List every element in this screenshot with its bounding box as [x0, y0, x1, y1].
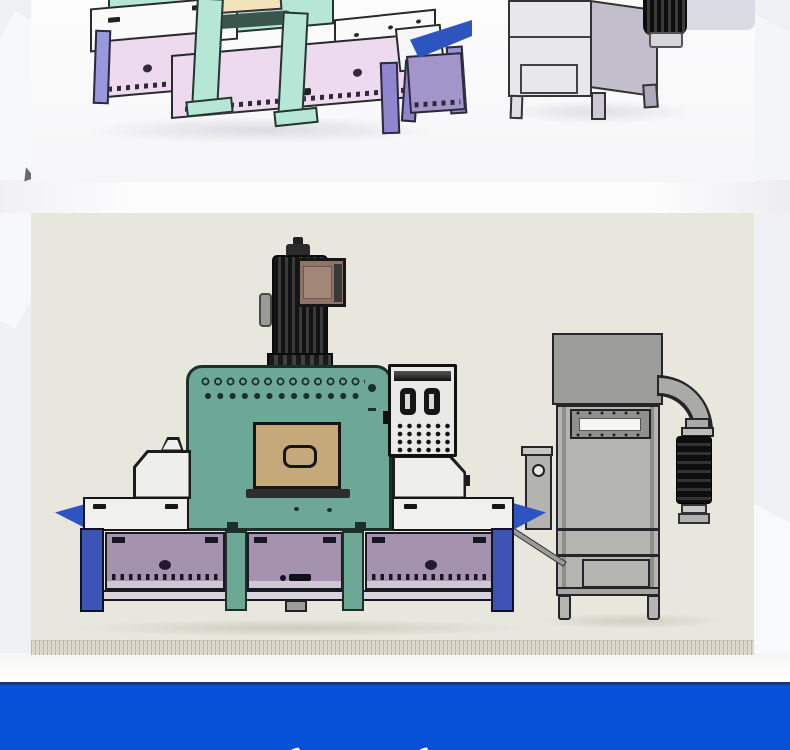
- panel-tab: [108, 17, 120, 23]
- gap-band-between-images: [0, 180, 790, 213]
- perforated-vent-row: [372, 574, 486, 580]
- panel-hole: [353, 68, 362, 77]
- panel-meter: [400, 388, 416, 415]
- bolt-dot: [354, 33, 359, 38]
- cabinet-tab: [254, 537, 267, 543]
- conveyor-end-cabinet: [406, 52, 466, 114]
- hood-right-face: [395, 458, 464, 497]
- bolt-dot: [294, 507, 299, 511]
- panel-side-hinge: [383, 411, 389, 424]
- panel-tick: [368, 408, 376, 411]
- product-image-front: [31, 213, 754, 655]
- render-floor-strip: [31, 640, 754, 655]
- machine-leg-teal-right: [342, 531, 364, 611]
- cabinet-tab: [372, 537, 385, 543]
- aux-port-hole: [532, 464, 545, 477]
- center-foot: [285, 600, 307, 612]
- base-cabinet-left: [105, 532, 225, 590]
- cabinet-tab: [112, 537, 125, 543]
- panel-meter: [424, 388, 440, 415]
- junction-box-side: [334, 264, 342, 302]
- conveyor-hood-right: [392, 455, 466, 499]
- mint-gantry-post-rear: [277, 11, 309, 118]
- perforated-vent-row: [112, 574, 218, 580]
- bolt-dot: [327, 508, 332, 512]
- hood-left-face: [136, 453, 189, 497]
- junction-box-cover: [303, 266, 332, 299]
- mint-post-foot: [185, 97, 233, 118]
- handle-dot: [280, 575, 286, 581]
- machine-leg-teal-left: [225, 531, 247, 611]
- floor-shadow: [71, 619, 531, 637]
- cabinet-tab: [205, 537, 218, 543]
- dust-collector-drawer: [520, 64, 578, 94]
- rivet-row: [414, 99, 461, 107]
- panel-seam: [510, 36, 590, 38]
- control-panel: [388, 364, 457, 457]
- exhaust-duct: [643, 0, 687, 36]
- blast-cabinet-body: [186, 365, 392, 531]
- cabinet-hole: [425, 560, 437, 570]
- dust-collector-leg: [558, 595, 571, 620]
- table-tab: [165, 504, 178, 509]
- bolt-dot: [416, 19, 421, 24]
- conveyor-table-right: [392, 497, 514, 531]
- bolt-row: [576, 433, 645, 437]
- cabinet-tab: [323, 537, 336, 543]
- motor-side-handle: [259, 293, 272, 327]
- machine-leg-lavender-right: [380, 62, 401, 135]
- cabinet-bottom-bar: [556, 587, 660, 596]
- cabinet-light-strip: [367, 581, 491, 588]
- dust-collector-vent-slot: [570, 409, 651, 439]
- section-banner-title: 产品实图: [267, 729, 523, 750]
- cabinet-hole: [159, 560, 171, 570]
- machine-leg-lavender-left: [93, 30, 112, 105]
- vent-slot-opening: [579, 418, 641, 431]
- hood-vent-bump: [157, 437, 184, 452]
- cabinet-light-strip: [107, 581, 223, 588]
- machine-leg-blue-left: [80, 528, 104, 612]
- conveyor-table-left: [83, 497, 189, 531]
- section-banner: 产品实图: [0, 682, 790, 750]
- bolt-row: [576, 411, 645, 415]
- vent-ring-row: [201, 377, 365, 386]
- table-tab: [93, 504, 106, 509]
- cabinet-seam: [556, 554, 660, 557]
- door-sill: [246, 489, 350, 498]
- dust-collector-leg: [642, 84, 659, 109]
- cabinet-handle: [289, 574, 311, 581]
- hood-latch-nub: [464, 475, 470, 486]
- conveyor-hood-left: [133, 450, 191, 499]
- dust-collector-front: [508, 0, 592, 97]
- cabinet-seam: [556, 528, 660, 531]
- dust-collector-top-box: [552, 333, 663, 405]
- meter-needle-slot: [429, 394, 434, 409]
- body-tab: [355, 522, 366, 528]
- door-window: [283, 445, 317, 468]
- bolt-dot: [388, 25, 393, 30]
- gap-band-above-banner: [0, 653, 790, 682]
- exhaust-duct-flange: [649, 32, 683, 48]
- dust-collector-leg: [647, 595, 660, 620]
- base-cabinet-center: [247, 532, 343, 590]
- machine-leg-blue-right: [491, 528, 514, 612]
- hood-vent-bump-face: [160, 440, 182, 450]
- dust-collector-leg: [591, 92, 606, 120]
- control-panel-display-bar: [394, 371, 451, 381]
- motor-junction-box: [297, 258, 346, 307]
- filter-foot-base: [678, 513, 710, 524]
- cabinet-light-strip: [249, 581, 341, 588]
- table-tab: [492, 504, 505, 509]
- filter-cartridge: [676, 436, 712, 504]
- vent-dot-row: [204, 392, 364, 400]
- dust-collector-drawer: [582, 559, 650, 588]
- meter-needle-slot: [405, 394, 410, 409]
- table-tab: [404, 504, 417, 509]
- product-image-isometric: [31, 0, 755, 182]
- dust-collector-leg: [510, 95, 524, 119]
- blast-chamber-door: [253, 422, 341, 489]
- button-grid: [397, 423, 451, 453]
- body-tab: [227, 522, 238, 528]
- panel-hole: [143, 64, 152, 73]
- cabinet-tab: [473, 537, 486, 543]
- base-cabinet-right: [365, 532, 493, 590]
- vent-dot: [368, 384, 376, 392]
